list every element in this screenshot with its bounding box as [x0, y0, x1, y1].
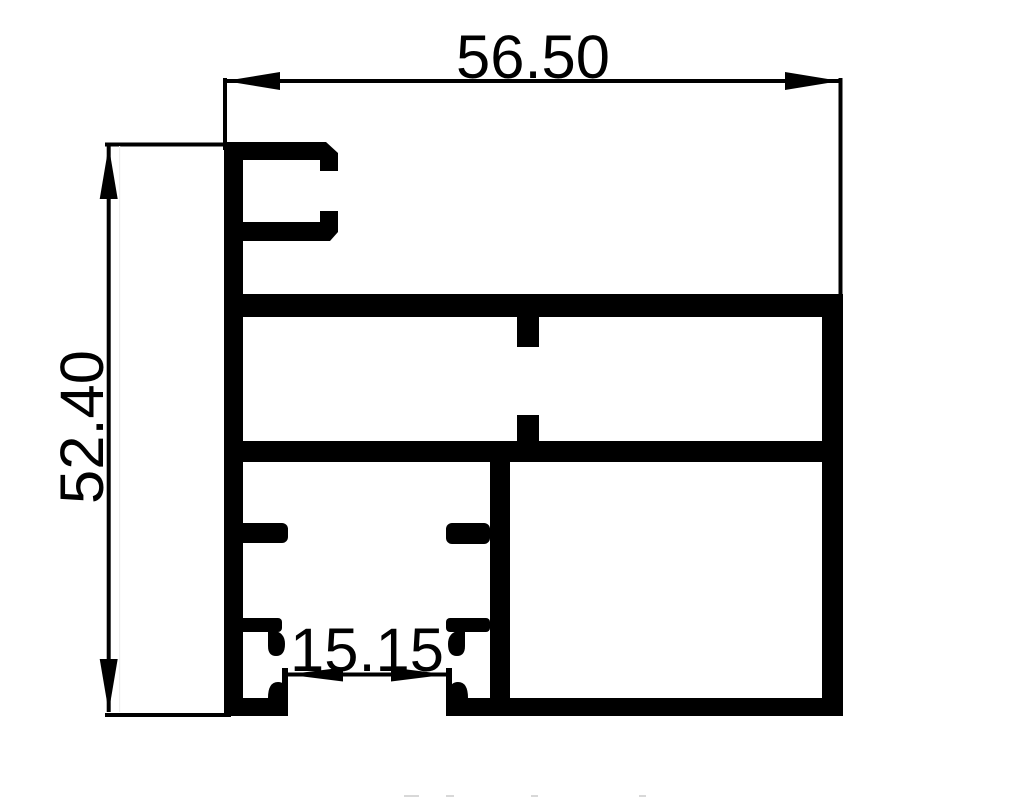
svg-text:52.40: 52.40: [48, 350, 117, 504]
svg-text:15.15: 15.15: [290, 616, 444, 685]
svg-text:56.50: 56.50: [456, 23, 610, 92]
